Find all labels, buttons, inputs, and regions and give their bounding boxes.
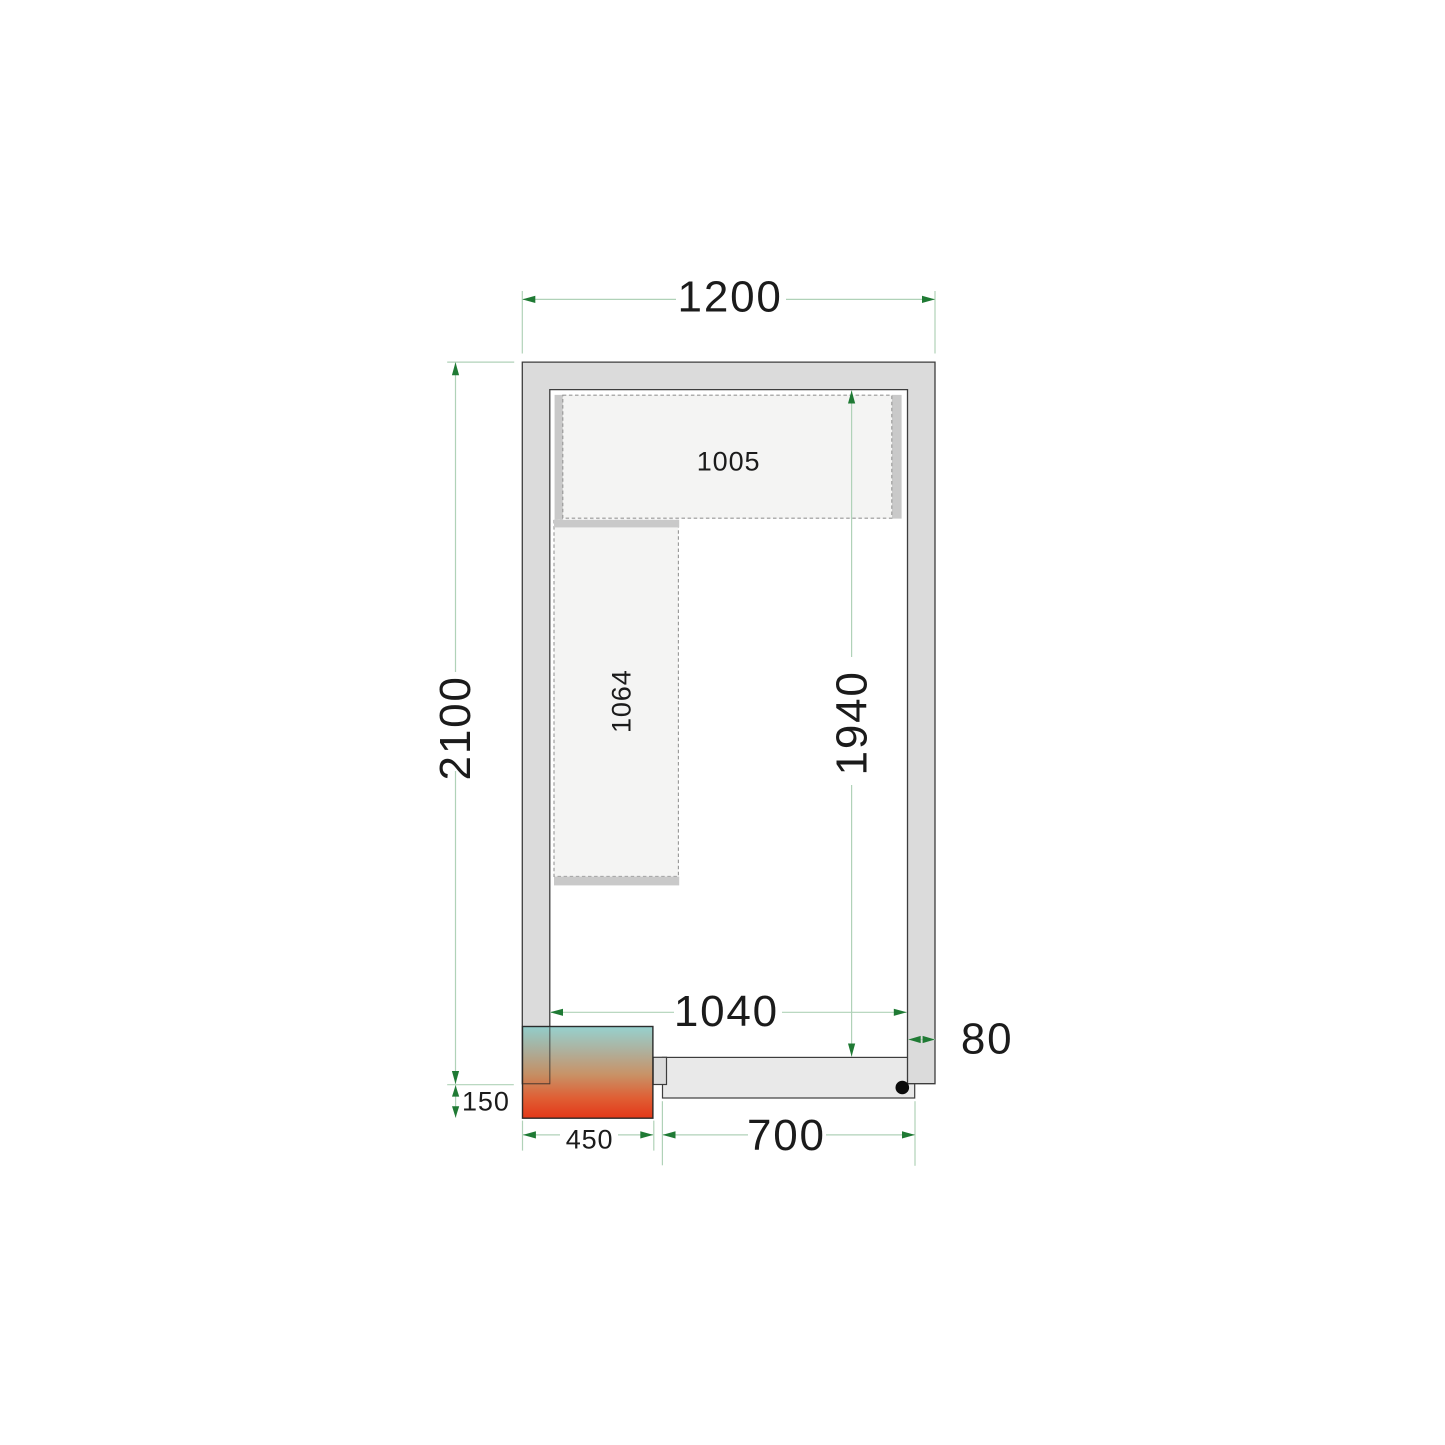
svg-text:1005: 1005: [697, 447, 761, 477]
svg-text:1064: 1064: [607, 669, 637, 733]
svg-text:450: 450: [566, 1125, 614, 1155]
svg-text:700: 700: [747, 1111, 826, 1160]
svg-text:80: 80: [961, 1015, 1014, 1064]
svg-text:150: 150: [462, 1087, 510, 1117]
svg-text:1200: 1200: [678, 273, 783, 322]
svg-text:2100: 2100: [431, 675, 480, 780]
svg-text:1940: 1940: [828, 670, 877, 775]
svg-text:1040: 1040: [674, 987, 779, 1036]
